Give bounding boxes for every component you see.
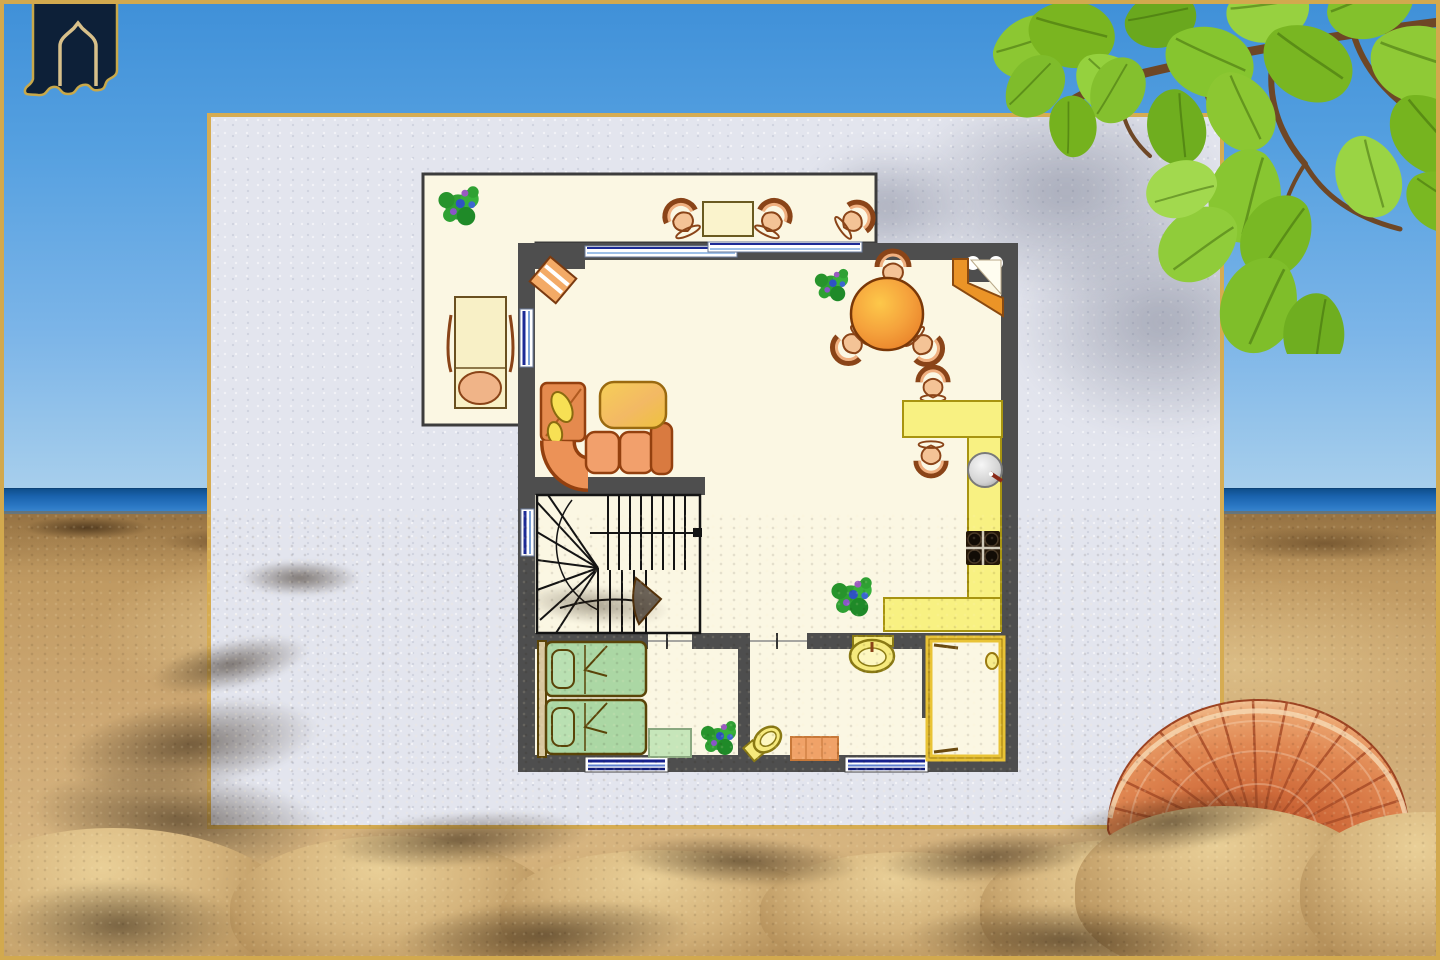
bistro-table xyxy=(703,202,753,236)
leaves xyxy=(984,0,1440,354)
shower-room xyxy=(929,639,1002,758)
single-bed xyxy=(546,642,646,696)
green-rug xyxy=(649,729,691,757)
beach-floorplan-composite xyxy=(0,0,1440,960)
coffee-table xyxy=(600,382,666,428)
round-dining-table xyxy=(851,278,923,350)
counter-bottom xyxy=(884,598,1001,631)
breakfast-bar xyxy=(903,401,1002,437)
sand-shadow xyxy=(0,880,240,960)
orange-bath-mat xyxy=(791,737,838,760)
drain xyxy=(986,653,998,669)
sun-lounger xyxy=(448,297,513,408)
single-bed xyxy=(546,700,646,754)
floor-plan xyxy=(418,168,1024,780)
logo-plaque xyxy=(25,0,117,95)
cooktop xyxy=(966,531,1000,565)
washbasin xyxy=(850,636,894,672)
tree-branch xyxy=(975,0,1440,354)
sand-shadow xyxy=(240,560,360,596)
sink xyxy=(968,453,1002,487)
brand-logo xyxy=(22,0,130,112)
